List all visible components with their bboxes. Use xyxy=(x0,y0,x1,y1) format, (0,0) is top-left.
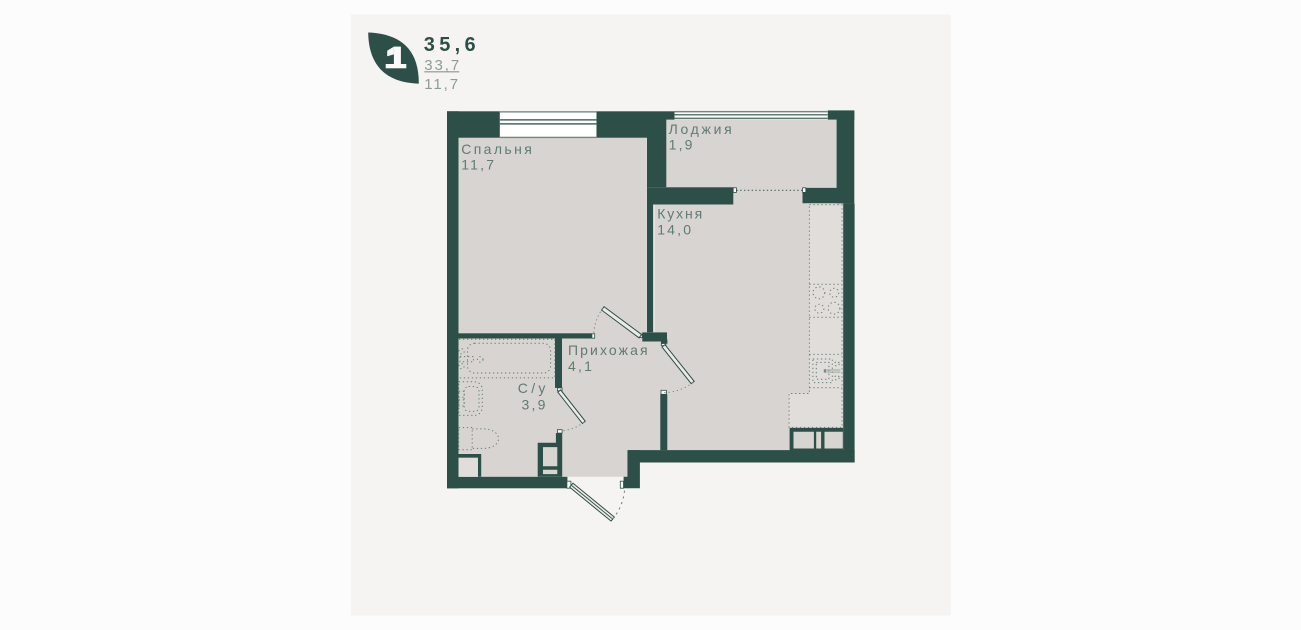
svg-text:11,7: 11,7 xyxy=(461,157,496,173)
svg-text:С/у: С/у xyxy=(518,380,549,396)
svg-text:1,9: 1,9 xyxy=(669,137,695,153)
svg-text:Прихожая: Прихожая xyxy=(568,342,650,358)
svg-text:Спальня: Спальня xyxy=(461,141,534,157)
svg-text:4,1: 4,1 xyxy=(568,358,594,374)
svg-text:Кухня: Кухня xyxy=(657,206,704,222)
svg-text:3,9: 3,9 xyxy=(522,396,548,412)
svg-text:14,0: 14,0 xyxy=(657,222,693,238)
svg-text:Лоджия: Лоджия xyxy=(669,121,735,137)
svg-text:35,6: 35,6 xyxy=(424,34,480,56)
svg-text:11,7: 11,7 xyxy=(424,76,460,93)
